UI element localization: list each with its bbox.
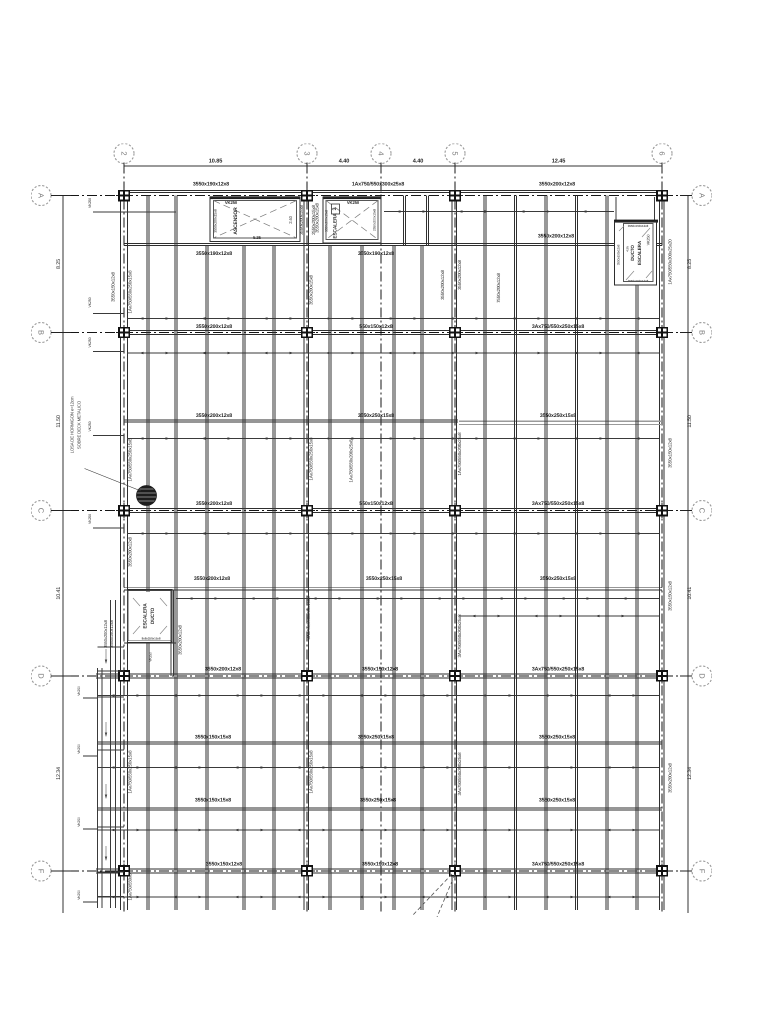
svg-text:3: 3 (332, 207, 338, 210)
svg-text:3550x190x12x8: 3550x190x12x8 (193, 182, 229, 188)
svg-text:3Ax750/550x200x15x8: 3Ax750/550x200x15x8 (306, 596, 311, 640)
svg-text:3Ax750/550x250x15x8: 3Ax750/550x250x15x8 (532, 862, 585, 868)
svg-text:DUCTO: DUCTO (150, 607, 156, 624)
svg-text:3550x200x12x8: 3550x200x12x8 (205, 667, 241, 673)
svg-text:1Ax750/550x250x15x8: 1Ax750/550x250x15x8 (128, 750, 133, 794)
svg-text:11.50: 11.50 (56, 415, 62, 427)
svg-text:10.41: 10.41 (687, 587, 693, 600)
svg-text:2550x200x15x8: 2550x200x15x8 (311, 204, 316, 234)
svg-text:3550x250x15x8: 3550x250x15x8 (540, 576, 576, 582)
svg-text:3550x150x15x8: 3550x150x15x8 (195, 798, 231, 804)
svg-text:3550x200x12x8: 3550x200x12x8 (457, 259, 462, 289)
svg-text:3550x250x15x8: 3550x250x15x8 (358, 735, 394, 741)
svg-text:3Ax750/550x250x15x8: 3Ax750/550x250x15x8 (532, 667, 585, 673)
svg-text:3550x250x15x8: 3550x250x15x8 (358, 413, 394, 419)
svg-text:3550x200x12x8: 3550x200x12x8 (196, 324, 232, 330)
svg-text:3550x250x15x8: 3550x250x15x8 (366, 576, 402, 582)
svg-text:ASCENSOR: ASCENSOR (233, 207, 239, 235)
svg-text:6: 6 (658, 151, 667, 155)
svg-text:DUCTO: DUCTO (630, 245, 635, 261)
svg-text:VK250: VK250 (647, 235, 651, 246)
svg-text:D: D (37, 673, 46, 679)
svg-text:10.85: 10.85 (209, 159, 223, 165)
svg-text:1Ax750/550x250x15x8: 1Ax750/550x250x15x8 (128, 438, 133, 482)
svg-text:7550x200x12x8: 7550x200x12x8 (496, 272, 501, 302)
svg-text:1Ax750/550x200x25x8: 1Ax750/550x200x25x8 (349, 439, 354, 483)
svg-text:3550x200x12x8: 3550x200x12x8 (194, 576, 230, 582)
svg-text:3550x200x12x8: 3550x200x12x8 (196, 413, 232, 419)
svg-text:3550x190x12x8: 3550x190x12x8 (358, 251, 394, 257)
svg-text:3550x150x12x8: 3550x150x12x8 (362, 667, 398, 673)
svg-text:2550x200x15x8: 2550x200x15x8 (373, 209, 377, 231)
svg-text:VK250: VK250 (88, 514, 92, 524)
svg-text:A: A (698, 193, 707, 198)
svg-text:VK250: VK250 (88, 198, 92, 208)
svg-text:B: B (698, 330, 707, 335)
svg-text:3550x150x12x8: 3550x150x12x8 (206, 862, 242, 868)
svg-text:1Ax750/550x250x15x8: 1Ax750/550x250x15x8 (309, 750, 314, 794)
svg-text:VK250: VK250 (88, 297, 92, 307)
svg-text:1Ax750/550x300x25x20: 1Ax750/550x300x25x20 (668, 239, 673, 285)
svg-text:3550x250x15x8: 3550x250x15x8 (539, 798, 575, 804)
svg-text:3550x190x12x8: 3550x190x12x8 (362, 862, 398, 868)
svg-text:VK250: VK250 (88, 421, 92, 431)
svg-text:3550x200x15x8: 3550x200x15x8 (214, 209, 218, 233)
svg-text:3Ax750/550x250x15x8: 3Ax750/550x250x15x8 (532, 501, 585, 507)
svg-text:F: F (698, 869, 707, 874)
svg-text:VK250: VK250 (149, 652, 153, 662)
svg-text:VK250: VK250 (77, 686, 81, 696)
svg-text:3Ax750/550x300x25x8: 3Ax750/550x300x25x8 (457, 752, 462, 796)
svg-text:1Ax750/550x8: 1Ax750/550x8 (128, 873, 133, 901)
svg-text:VK250: VK250 (347, 200, 360, 205)
svg-text:3550x200x15x8: 3550x200x15x8 (309, 274, 314, 304)
svg-text:1Ax750/550x250x15x8: 1Ax750/550x250x15x8 (128, 270, 133, 314)
svg-text:3550x200x12x8: 3550x200x12x8 (196, 501, 232, 507)
svg-text:550x150x12x8: 550x150x12x8 (359, 324, 393, 330)
svg-text:3550x200x12x8: 3550x200x12x8 (539, 182, 575, 188)
svg-text:12.45: 12.45 (552, 159, 566, 165)
svg-text:ESCALERA: ESCALERA (637, 240, 642, 265)
svg-text:3550x150x12x8: 3550x150x12x8 (628, 224, 649, 228)
svg-text:12.34: 12.34 (56, 767, 62, 780)
svg-text:VK250: VK250 (225, 200, 238, 205)
svg-text:1Ax750/550x300x25x8: 1Ax750/550x300x25x8 (352, 182, 405, 188)
svg-text:3550x150x12x8: 3550x150x12x8 (628, 279, 649, 283)
svg-text:4.40: 4.40 (413, 159, 424, 165)
svg-text:VK250: VK250 (77, 817, 81, 827)
svg-text:ESCALERA: ESCALERA (143, 603, 149, 629)
svg-text:8.25: 8.25 (56, 259, 62, 269)
svg-text:VK250: VK250 (77, 890, 81, 900)
svg-text:3550x200x12x8: 3550x200x12x8 (668, 762, 673, 792)
svg-text:3: 3 (303, 151, 312, 155)
svg-text:VK250: VK250 (77, 744, 81, 754)
svg-text:ESCALERA: ESCALERA (333, 213, 339, 239)
svg-text:3550x200x12x8: 3550x200x12x8 (440, 269, 445, 299)
svg-text:3550x150x12x8: 3550x150x12x8 (109, 619, 114, 647)
svg-text:F: F (37, 869, 46, 874)
svg-text:VK250: VK250 (88, 337, 92, 347)
svg-text:10.41: 10.41 (56, 587, 62, 600)
svg-text:3550x200x12x8: 3550x200x12x8 (128, 536, 133, 566)
svg-text:3550x200x15x8: 3550x200x15x8 (325, 210, 329, 232)
svg-text:1Ax750/550x200x25x8: 1Ax750/550x200x25x8 (457, 432, 462, 476)
svg-text:4.9h: 4.9h (626, 246, 630, 252)
svg-text:3550x150x12x8: 3550x150x12x8 (617, 244, 621, 265)
svg-text:A: A (37, 193, 46, 198)
svg-text:1Ax750/550x250x15x8: 1Ax750/550x250x15x8 (309, 437, 314, 481)
svg-text:3550x150x12x8: 3550x150x12x8 (111, 271, 116, 301)
svg-text:8.25: 8.25 (687, 259, 693, 269)
svg-text:5.35: 5.35 (253, 235, 262, 240)
svg-text:C: C (37, 508, 46, 514)
svg-text:C: C (698, 508, 707, 514)
svg-text:4.40: 4.40 (339, 159, 350, 165)
svg-text:3550x150x15x8: 3550x150x15x8 (195, 735, 231, 741)
svg-text:550x150x12x8: 550x150x12x8 (359, 501, 393, 507)
svg-text:3Ax750/550x250x15x8: 3Ax750/550x250x15x8 (532, 324, 585, 330)
svg-text:3550x200x12x8: 3550x200x12x8 (538, 234, 574, 240)
svg-text:2: 2 (120, 151, 129, 155)
svg-text:3550x200x12x8: 3550x200x12x8 (178, 624, 183, 654)
svg-text:3550x250x15x8: 3550x250x15x8 (539, 735, 575, 741)
svg-text:LOSA DE HORMIGON e=12cm: LOSA DE HORMIGON e=12cm (70, 396, 75, 453)
svg-text:3550x200x15x8: 3550x200x15x8 (299, 204, 304, 234)
svg-text:12.34: 12.34 (687, 767, 693, 780)
svg-text:SOBRE DECK METALICO: SOBRE DECK METALICO (77, 400, 82, 449)
svg-text:3550x250x15x8: 3550x250x15x8 (540, 413, 576, 419)
svg-text:4: 4 (377, 151, 386, 155)
svg-text:B: B (37, 330, 46, 335)
svg-text:3Ax750/550x300x25x8: 3Ax750/550x300x25x8 (457, 614, 462, 658)
svg-text:11.50: 11.50 (687, 415, 693, 427)
svg-text:3550x150x12x8: 3550x150x12x8 (668, 580, 673, 610)
svg-text:8x8x250x15x8: 8x8x250x15x8 (142, 636, 161, 640)
svg-text:2.40: 2.40 (288, 215, 293, 223)
svg-text:5: 5 (451, 151, 460, 155)
svg-text:3550x250x15x8: 3550x250x15x8 (360, 798, 396, 804)
svg-text:3550x150x12x8: 3550x150x12x8 (668, 437, 673, 467)
svg-text:D: D (698, 673, 707, 679)
svg-text:3550x190x12x8: 3550x190x12x8 (196, 251, 232, 257)
svg-text:3550x200x12x8: 3550x200x12x8 (103, 619, 108, 647)
